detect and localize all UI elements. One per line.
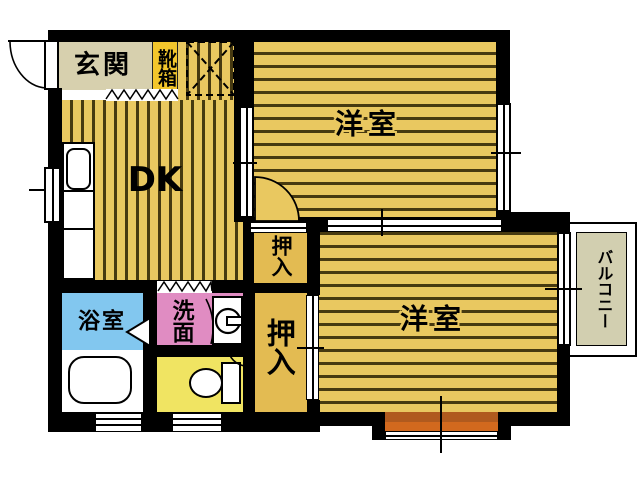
wall-room-top-south-b <box>502 217 570 232</box>
closet-upper-sliding-door <box>250 222 307 233</box>
bay-window-jamb-left <box>372 412 385 440</box>
wall-mid-horizontal <box>48 280 254 293</box>
wall-closet-right-upper <box>307 222 320 295</box>
wall-right-lower <box>557 345 570 426</box>
bathroom-label: 浴室 <box>78 310 126 333</box>
wall-right-upper <box>496 42 510 103</box>
wall-closet-left-lower <box>243 293 255 412</box>
toilet-window <box>172 413 222 432</box>
bathroom-window <box>95 413 142 432</box>
entry-door-swing-arc <box>10 42 46 88</box>
toilet-bowl-icon <box>189 368 223 398</box>
washing-machine-box <box>212 296 243 345</box>
kitchen-window <box>44 167 61 223</box>
toilet-tank-icon <box>221 362 241 404</box>
wall-bottom-right-a <box>317 412 372 426</box>
genkan-label: 玄関 <box>74 52 132 79</box>
counter-divider-2 <box>62 228 95 230</box>
dk-sliding-door <box>240 107 253 217</box>
balcony-label: バルコニー <box>595 249 612 329</box>
genkan-step-zigzag <box>106 90 178 99</box>
counter-divider-1 <box>62 190 95 192</box>
dk-label: DK <box>128 163 183 199</box>
bay-window-sill-light <box>385 422 498 431</box>
bay-window-sill-dark <box>385 412 498 422</box>
closet-lower-sliding-door <box>306 295 319 400</box>
wall-top <box>48 30 510 42</box>
kitchen-sink-icon <box>66 148 91 190</box>
bedroom-bottom-label: 洋室 <box>400 304 466 333</box>
wall-left <box>48 88 62 432</box>
entry-door-panel <box>44 40 59 90</box>
wall-bath-divider <box>143 293 157 412</box>
hall-floor <box>178 40 234 107</box>
rooms-sliding-door <box>327 219 502 232</box>
balcony-sliding-door <box>557 232 571 346</box>
closet-upper-label: 押入 <box>270 235 292 277</box>
bay-window-jamb-right <box>498 412 511 440</box>
wall-washroom-south <box>157 345 255 357</box>
floorplan-canvas: 玄関 靴箱 DK 洋室 洋室 押入 押入 浴室 洗面 バルコニー <box>0 0 640 480</box>
bathtub-icon <box>68 356 132 404</box>
bay-window-glass <box>385 431 498 440</box>
bedroom-top-label: 洋室 <box>335 109 401 138</box>
wall-closet-right-lower <box>307 400 320 412</box>
closet-lower-label: 押入 <box>264 318 294 376</box>
washroom-label: 洗面 <box>169 299 192 343</box>
bedroom-top-window <box>496 103 511 212</box>
shoebox-label: 靴箱 <box>155 49 175 87</box>
